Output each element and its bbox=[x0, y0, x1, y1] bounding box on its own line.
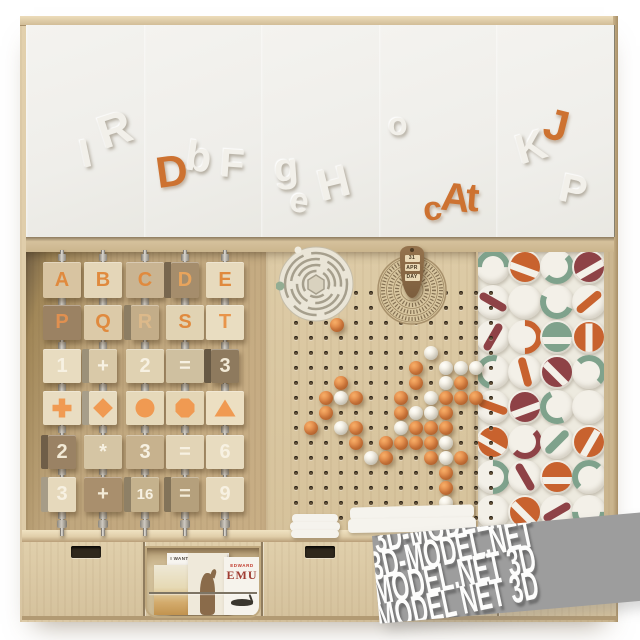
pegboard-ball bbox=[409, 406, 423, 420]
pattern-arc bbox=[540, 252, 574, 284]
pegboard-hole bbox=[459, 441, 463, 445]
pegboard-ball bbox=[394, 421, 408, 435]
rod-sleeve bbox=[221, 254, 229, 261]
pattern-tile bbox=[478, 460, 510, 494]
pegboard-hole bbox=[489, 456, 493, 460]
pegboard-hole bbox=[294, 456, 298, 460]
pattern-disc-stripe bbox=[574, 259, 604, 282]
pattern-arc bbox=[508, 425, 542, 459]
pegboard-hole bbox=[399, 456, 403, 460]
pattern-tile bbox=[572, 320, 604, 354]
pegboard-hole bbox=[324, 501, 328, 505]
rod-sleeve bbox=[99, 342, 107, 349]
pegboard-ball bbox=[349, 436, 363, 450]
pegboard-hole bbox=[339, 441, 343, 445]
abacus-block-3: 3 bbox=[48, 477, 76, 512]
pegboard-ball bbox=[439, 406, 453, 420]
pegboard-ball bbox=[469, 391, 483, 405]
pattern-tile bbox=[572, 460, 604, 494]
pattern-disc bbox=[574, 322, 604, 352]
rod-sleeve bbox=[99, 426, 107, 433]
rod-sleeve bbox=[141, 468, 149, 475]
pattern-bar bbox=[575, 289, 603, 314]
pattern-disc-stripe bbox=[510, 401, 540, 419]
pegboard-hole bbox=[399, 501, 403, 505]
pegboard-hole bbox=[309, 381, 313, 385]
pegboard-hole bbox=[339, 486, 343, 490]
shape-cross bbox=[53, 399, 72, 418]
pegboard-hole bbox=[399, 471, 403, 475]
pegboard-ball bbox=[439, 391, 453, 405]
pegboard-hole bbox=[354, 336, 358, 340]
block-char: E bbox=[218, 269, 231, 292]
pegboard-hole bbox=[294, 426, 298, 430]
pegboard-hole bbox=[489, 516, 493, 520]
pegboard-ball bbox=[409, 376, 423, 390]
pegboard-hole bbox=[339, 456, 343, 460]
pegboard-ball bbox=[334, 391, 348, 405]
pegboard-ball bbox=[454, 451, 468, 465]
rod-sleeve bbox=[58, 426, 66, 433]
abacus-block-2: 2 bbox=[126, 349, 164, 383]
rod-sleeve bbox=[181, 384, 189, 391]
pegboard-hole bbox=[294, 396, 298, 400]
pattern-bar bbox=[478, 291, 508, 313]
pegboard-hole bbox=[369, 351, 373, 355]
shape-diamond bbox=[93, 398, 113, 418]
abacus-block-+: + bbox=[89, 349, 117, 383]
pegboard-hole bbox=[489, 321, 493, 325]
cabinet-door bbox=[261, 25, 380, 237]
block-char: 3 bbox=[56, 483, 67, 506]
pegboard-hole bbox=[369, 321, 373, 325]
pegboard-hole bbox=[369, 306, 373, 310]
abacus-block-3: 3 bbox=[211, 349, 239, 383]
abacus-block-=: = bbox=[166, 349, 204, 383]
pegboard-hole bbox=[474, 501, 478, 505]
rod-sleeve bbox=[141, 512, 149, 519]
abacus-block-C: C bbox=[126, 262, 164, 298]
rod-sleeve bbox=[58, 468, 66, 475]
rod-sleeve bbox=[58, 254, 66, 261]
block-char: B bbox=[96, 269, 110, 292]
pegboard-hole bbox=[429, 471, 433, 475]
pegboard-ball bbox=[394, 391, 408, 405]
abacus-block-9: 9 bbox=[206, 477, 244, 512]
abacus-block-circle bbox=[126, 391, 164, 425]
pegboard-ball bbox=[424, 421, 438, 435]
pegboard-hole bbox=[489, 501, 493, 505]
pattern-disc-stripe bbox=[543, 361, 572, 387]
rod-sleeve bbox=[221, 426, 229, 433]
dial-window-date: 31 bbox=[405, 255, 420, 262]
llama-ear bbox=[210, 568, 218, 578]
pegboard-hole bbox=[369, 336, 373, 340]
block-side bbox=[41, 435, 48, 469]
pegboard-ball bbox=[424, 451, 438, 465]
block-char: + bbox=[97, 483, 109, 506]
pegboard-hole bbox=[294, 486, 298, 490]
pegboard-hole bbox=[459, 471, 463, 475]
rod-sleeve bbox=[99, 384, 107, 391]
pegboard-ball bbox=[454, 391, 468, 405]
pattern-tile bbox=[540, 320, 574, 354]
pegboard-ball bbox=[439, 361, 453, 375]
pattern-tile bbox=[478, 355, 510, 389]
rod-sleeve bbox=[141, 254, 149, 261]
block-char: = bbox=[179, 483, 191, 506]
pegboard-hole bbox=[309, 486, 313, 490]
pegboard-hole bbox=[474, 336, 478, 340]
pegboard-hole bbox=[459, 411, 463, 415]
pegboard-hole bbox=[489, 441, 493, 445]
block-side bbox=[204, 349, 211, 383]
shape-octagon bbox=[176, 399, 195, 418]
dial-window-month: APR bbox=[405, 264, 420, 271]
abacus-block-T: T bbox=[206, 305, 244, 340]
pegboard-hole bbox=[324, 486, 328, 490]
pegboard-hole bbox=[474, 441, 478, 445]
pattern-tile bbox=[572, 285, 604, 319]
pegboard-hole bbox=[384, 351, 388, 355]
pegboard-hole bbox=[444, 336, 448, 340]
pegboard-hole bbox=[444, 351, 448, 355]
pegboard-hole bbox=[474, 456, 478, 460]
pegboard-hole bbox=[474, 306, 478, 310]
pegboard-hole bbox=[459, 426, 463, 430]
rod-sleeve bbox=[58, 384, 66, 391]
pattern-bar bbox=[478, 398, 508, 416]
pattern-bar bbox=[482, 322, 504, 352]
product-render: IRDbFgeHocAtKJP bbox=[0, 0, 640, 640]
pegboard-ball bbox=[349, 391, 363, 405]
abacus-block-1: 1 bbox=[43, 349, 81, 383]
pattern-disc-stripe bbox=[478, 434, 508, 457]
block-char: 3 bbox=[139, 441, 150, 464]
abacus-block-+: + bbox=[84, 477, 122, 512]
pegboard-hole bbox=[429, 501, 433, 505]
pegboard-hole bbox=[399, 381, 403, 385]
block-char: 16 bbox=[137, 486, 154, 503]
rod-sleeve bbox=[99, 254, 107, 261]
pattern-tile bbox=[540, 285, 574, 319]
pattern-disc bbox=[574, 252, 604, 282]
pegboard-hole bbox=[459, 291, 463, 295]
pegboard-ball bbox=[334, 376, 348, 390]
pegboard-hole bbox=[414, 486, 418, 490]
pattern-tile bbox=[540, 425, 574, 459]
pegboard-hole bbox=[294, 441, 298, 445]
block-char: * bbox=[99, 441, 107, 464]
block-char: P bbox=[55, 311, 68, 334]
white-stack bbox=[291, 530, 339, 538]
pegboard-hole bbox=[339, 471, 343, 475]
abacus-block-6: 6 bbox=[206, 435, 244, 469]
book-emu: EDWARD EMU bbox=[224, 557, 260, 615]
pegboard-ball bbox=[379, 451, 393, 465]
pegboard-ball bbox=[319, 406, 333, 420]
pegboard-hole bbox=[489, 396, 493, 400]
dial-screw bbox=[410, 248, 414, 252]
maze-toy bbox=[276, 244, 356, 324]
pegboard-hole bbox=[474, 471, 478, 475]
pattern-tile bbox=[540, 460, 574, 494]
pattern-disc bbox=[478, 427, 508, 457]
pegboard-hole bbox=[339, 501, 343, 505]
shape-circle bbox=[136, 399, 155, 418]
pattern-tile bbox=[540, 355, 574, 389]
pegboard-hole bbox=[339, 336, 343, 340]
pegboard-hole bbox=[489, 486, 493, 490]
pattern-tile bbox=[478, 320, 510, 354]
abacus-block-A: A bbox=[43, 262, 81, 298]
pegboard-hole bbox=[489, 426, 493, 430]
pegboard-hole bbox=[474, 486, 478, 490]
rod-sleeve bbox=[58, 342, 66, 349]
pattern-arc bbox=[572, 460, 604, 494]
abacus-block-D: D bbox=[171, 262, 199, 298]
drawer-handle-cutout bbox=[305, 546, 335, 558]
pegboard-hole bbox=[399, 336, 403, 340]
pegboard-hole bbox=[354, 456, 358, 460]
abacus-block-P: P bbox=[43, 305, 81, 340]
niche-guard-rail bbox=[149, 592, 257, 594]
pegboard-hole bbox=[489, 306, 493, 310]
door-letter-F: F bbox=[219, 143, 246, 185]
pegboard-ball bbox=[394, 406, 408, 420]
pegboard-hole bbox=[324, 471, 328, 475]
abacus-block-E: E bbox=[206, 262, 244, 298]
rod-nut bbox=[140, 520, 150, 528]
pegboard-ball bbox=[424, 436, 438, 450]
pegboard-hole bbox=[369, 381, 373, 385]
block-char: 3 bbox=[219, 355, 230, 378]
pattern-disc-stripe bbox=[577, 429, 600, 457]
pegboard-ball bbox=[424, 346, 438, 360]
pegboard-hole bbox=[489, 411, 493, 415]
pattern-disc bbox=[542, 357, 572, 387]
pegboard-hole bbox=[369, 291, 373, 295]
rod-sleeve bbox=[181, 254, 189, 261]
pattern-disc-stripe bbox=[542, 477, 572, 484]
block-char: 9 bbox=[219, 483, 230, 506]
block-char: S bbox=[178, 311, 191, 334]
decor-pattern-panel bbox=[478, 252, 604, 532]
pegboard-ball bbox=[439, 466, 453, 480]
pegboard-hole bbox=[489, 366, 493, 370]
drawer-seam bbox=[261, 542, 263, 616]
pegboard-ball bbox=[424, 406, 438, 420]
drawer-handle-cutout bbox=[71, 546, 101, 558]
block-side bbox=[82, 391, 89, 425]
pattern-tile bbox=[508, 355, 542, 389]
pegboard-hole bbox=[324, 381, 328, 385]
pattern-disc bbox=[542, 322, 572, 352]
pegboard-hole bbox=[339, 411, 343, 415]
pegboard-hole bbox=[384, 411, 388, 415]
pegboard-ball bbox=[394, 436, 408, 450]
pegboard-hole bbox=[384, 426, 388, 430]
pegboard-hole bbox=[459, 351, 463, 355]
block-char: = bbox=[179, 355, 191, 378]
pegboard-hole bbox=[369, 471, 373, 475]
block-char: Q bbox=[95, 311, 111, 334]
pegboard-hole bbox=[459, 306, 463, 310]
pegboard-ball bbox=[454, 376, 468, 390]
rod-sleeve bbox=[58, 512, 66, 519]
rod-sleeve bbox=[58, 298, 66, 305]
block-side bbox=[82, 349, 89, 383]
pegboard-ball bbox=[439, 451, 453, 465]
pattern-tile bbox=[478, 390, 510, 424]
pegboard-hole bbox=[339, 351, 343, 355]
pegboard-hole bbox=[414, 336, 418, 340]
block-side bbox=[164, 262, 171, 298]
abacus-block-R: R bbox=[131, 305, 159, 340]
rod-sleeve bbox=[141, 384, 149, 391]
pegboard-hole bbox=[369, 426, 373, 430]
pattern-tile bbox=[540, 252, 574, 284]
rod-sleeve bbox=[141, 342, 149, 349]
pegboard-hole bbox=[324, 366, 328, 370]
rod-sleeve bbox=[221, 468, 229, 475]
pegboard-hole bbox=[429, 366, 433, 370]
pegboard-hole bbox=[384, 396, 388, 400]
door-letter-t: t bbox=[465, 178, 481, 219]
abacus-block-=: = bbox=[166, 435, 204, 469]
pegboard-hole bbox=[474, 381, 478, 385]
rod-nut bbox=[180, 520, 190, 528]
cabinet-door bbox=[144, 25, 263, 237]
rod-sleeve bbox=[99, 512, 107, 519]
pegboard-hole bbox=[429, 486, 433, 490]
pegboard-hole bbox=[369, 366, 373, 370]
pegboard-hole bbox=[324, 426, 328, 430]
pattern-disc bbox=[510, 392, 540, 422]
pegboard-ball bbox=[439, 421, 453, 435]
pegboard-hole bbox=[399, 351, 403, 355]
pattern-tile bbox=[478, 285, 510, 319]
pegboard-hole bbox=[309, 441, 313, 445]
block-side bbox=[124, 477, 131, 512]
dial-window-day: DAY bbox=[405, 274, 420, 281]
pattern-tile bbox=[478, 425, 510, 459]
abacus-block-=: = bbox=[171, 477, 199, 512]
pegboard-hole bbox=[399, 486, 403, 490]
block-char: + bbox=[97, 355, 109, 378]
pegboard-hole bbox=[294, 411, 298, 415]
pegboard-hole bbox=[414, 396, 418, 400]
pegboard-ball bbox=[469, 361, 483, 375]
pegboard-hole bbox=[489, 336, 493, 340]
pegboard-ball bbox=[409, 436, 423, 450]
pegboard-hole bbox=[309, 396, 313, 400]
rod-sleeve bbox=[99, 298, 107, 305]
abacus-block-B: B bbox=[84, 262, 122, 298]
rod-sleeve bbox=[141, 426, 149, 433]
pegboard-hole bbox=[294, 366, 298, 370]
pegboard-hole bbox=[489, 351, 493, 355]
rod-nut bbox=[57, 520, 67, 528]
pattern-bar bbox=[514, 462, 536, 492]
pegboard-hole bbox=[339, 366, 343, 370]
abacus-block-*: * bbox=[84, 435, 122, 469]
rod-sleeve bbox=[221, 342, 229, 349]
pattern-tile bbox=[572, 252, 604, 284]
shape-triangle bbox=[215, 400, 236, 417]
rod-nut bbox=[98, 520, 108, 528]
pegboard-hole bbox=[354, 366, 358, 370]
book-emu-title: EMU bbox=[224, 568, 260, 583]
pegboard-hole bbox=[294, 336, 298, 340]
book-niche: I WANT MY HAT BACK EDWARD EMU bbox=[145, 546, 261, 618]
pegboard-ball bbox=[304, 421, 318, 435]
llama-silhouette bbox=[200, 573, 215, 615]
pegboard-hole bbox=[459, 321, 463, 325]
pattern-tile bbox=[508, 285, 542, 319]
pegboard-hole bbox=[369, 486, 373, 490]
abacus-block-cross bbox=[43, 391, 81, 425]
block-char: 6 bbox=[219, 441, 230, 464]
pegboard-hole bbox=[339, 516, 343, 520]
pegboard-ball bbox=[319, 391, 333, 405]
abacus-block-diamond bbox=[89, 391, 117, 425]
pegboard-hole bbox=[369, 441, 373, 445]
pegboard-hole bbox=[294, 351, 298, 355]
book-llama bbox=[188, 553, 227, 615]
pegboard-hole bbox=[384, 366, 388, 370]
pegboard-hole bbox=[309, 351, 313, 355]
rod-sleeve bbox=[221, 384, 229, 391]
abacus-block-octagon bbox=[166, 391, 204, 425]
pegboard-hole bbox=[384, 486, 388, 490]
pegboard-hole bbox=[489, 381, 493, 385]
rod-sleeve bbox=[221, 298, 229, 305]
rod-sleeve bbox=[181, 298, 189, 305]
pegboard-hole bbox=[384, 471, 388, 475]
calendar-dial-toy: 31 APR DAY bbox=[376, 246, 448, 326]
pegboard-hole bbox=[459, 336, 463, 340]
pegboard-hole bbox=[309, 456, 313, 460]
pegboard-ball bbox=[424, 391, 438, 405]
pattern-tile bbox=[572, 390, 604, 424]
pegboard-hole bbox=[309, 501, 313, 505]
pegboard-hole bbox=[414, 501, 418, 505]
door-letter-b: b bbox=[183, 134, 214, 179]
block-side bbox=[164, 477, 171, 512]
pegboard-hole bbox=[354, 501, 358, 505]
pegboard-hole bbox=[474, 351, 478, 355]
pegboard-hole bbox=[354, 381, 358, 385]
pattern-tile bbox=[508, 320, 542, 354]
pegboard-ball bbox=[439, 436, 453, 450]
pegboard-ball bbox=[454, 361, 468, 375]
book-savanna bbox=[154, 565, 189, 615]
pegboard-hole bbox=[369, 411, 373, 415]
pegboard-hole bbox=[354, 411, 358, 415]
pattern-disc bbox=[542, 462, 572, 492]
pegboard-hole bbox=[324, 456, 328, 460]
rod-sleeve bbox=[181, 426, 189, 433]
pegboard-hole bbox=[369, 501, 373, 505]
abacus-block-triangle bbox=[206, 391, 244, 425]
pegboard-hole bbox=[369, 396, 373, 400]
pattern-disc-stripe bbox=[542, 337, 572, 344]
pegboard-hole bbox=[474, 426, 478, 430]
pegboard-hole bbox=[384, 336, 388, 340]
abacus-block-2: 2 bbox=[48, 435, 76, 469]
block-char: 1 bbox=[56, 355, 67, 378]
